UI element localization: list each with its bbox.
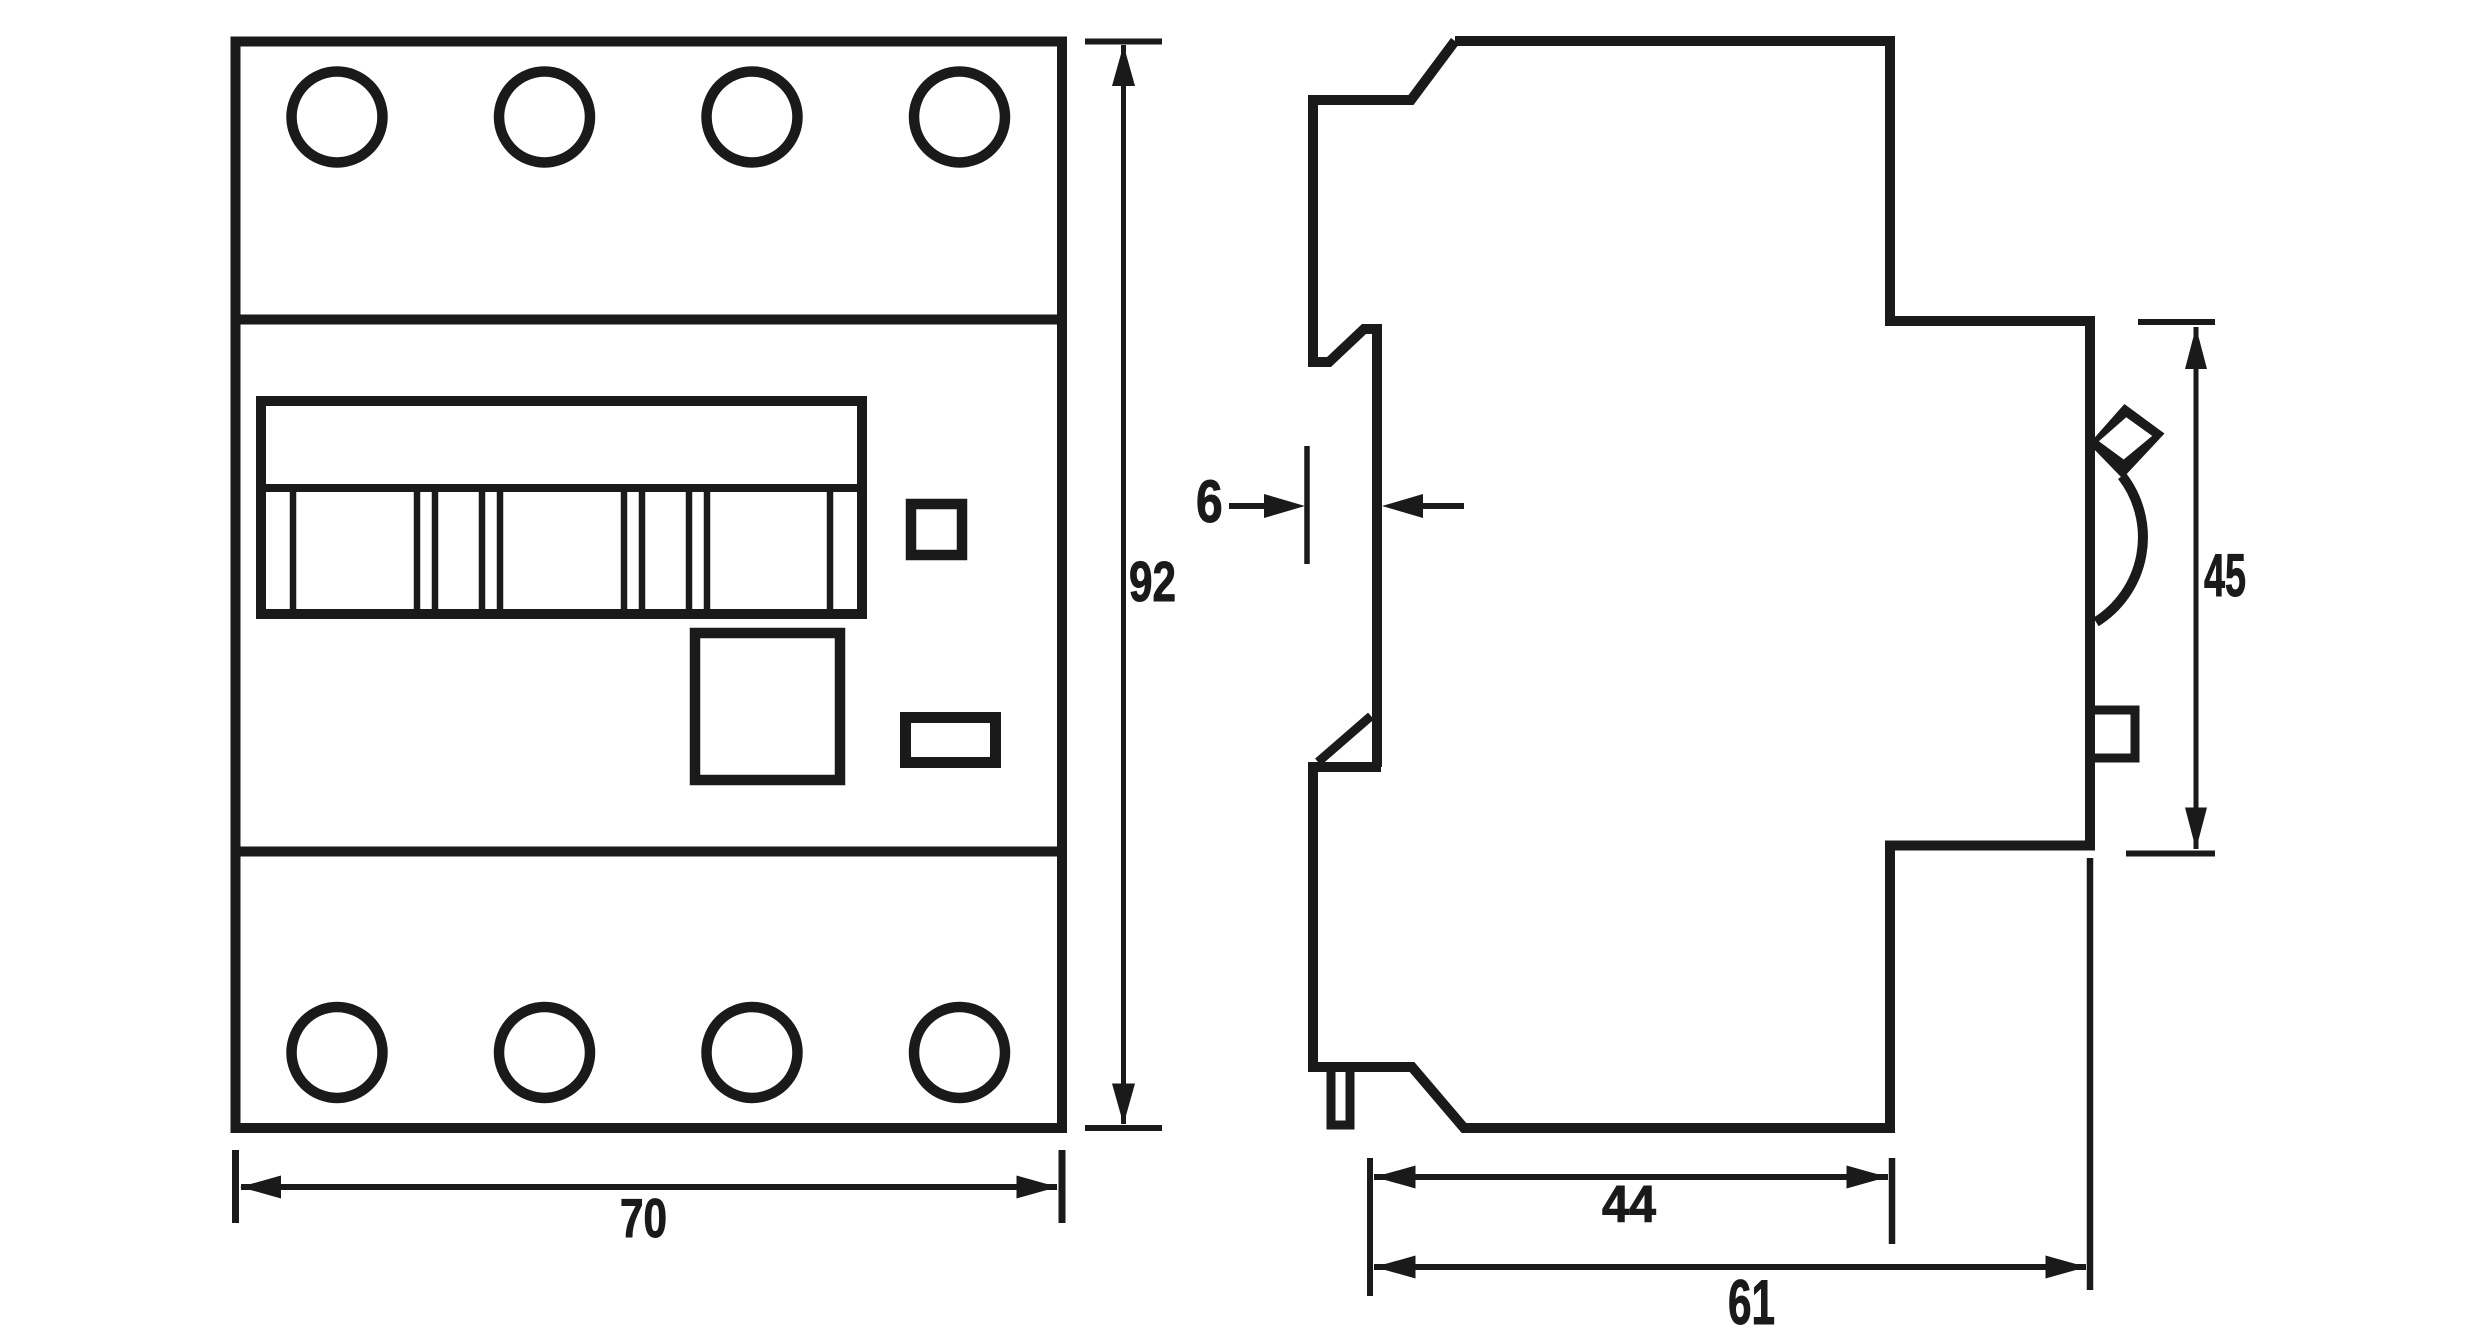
svg-text:6: 6 (1196, 468, 1223, 535)
svg-text:92: 92 (1129, 550, 1176, 614)
svg-text:61: 61 (1728, 1268, 1775, 1330)
svg-text:44: 44 (1602, 1176, 1656, 1234)
svg-text:45: 45 (2204, 542, 2246, 609)
svg-text:70: 70 (620, 1187, 667, 1249)
